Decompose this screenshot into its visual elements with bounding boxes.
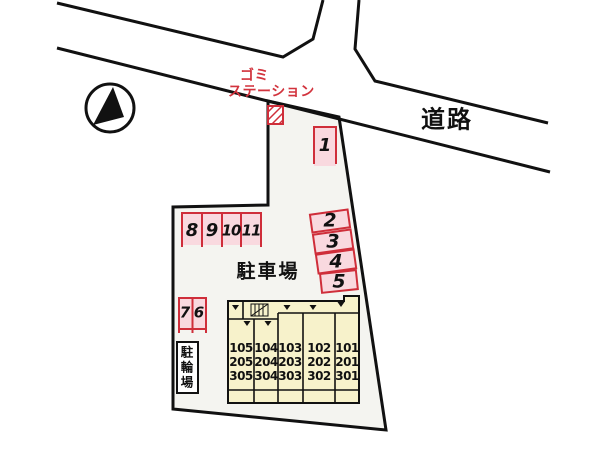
garbage-station-label-line1: ゴミ	[240, 69, 269, 85]
road-upper-edge	[57, 0, 323, 57]
stall-number-6: 6	[194, 305, 204, 322]
stall-number-11: 11	[242, 223, 261, 240]
bicycle-parking-label: 駐 輪 場	[181, 345, 194, 390]
stall-number-7: 7	[180, 305, 190, 322]
building-unit-numbers-104: 104 204 304	[254, 342, 278, 383]
stall-number-1: 1	[319, 136, 332, 156]
branch-road-right-edge	[355, 0, 548, 123]
building-unit-numbers-103: 103 203 303	[278, 342, 302, 383]
parking-lot-label: 駐車場	[236, 261, 299, 282]
building-unit-numbers-105: 105 205 305	[229, 342, 253, 383]
stall-number-10: 10	[222, 223, 241, 240]
building-unit-numbers-102: 102 202 302	[307, 342, 331, 383]
stall-number-5: 5	[332, 271, 345, 292]
stall-number-2: 2	[323, 210, 336, 231]
garbage-station-label-line2: ステーション	[228, 85, 315, 101]
garbage-station-box	[268, 106, 283, 124]
stall-number-9: 9	[206, 221, 219, 241]
building-unit-numbers-101: 101 201 301	[335, 342, 359, 383]
site-plan: 道路 ゴミ ステーション 駐車場 駐 輪 場 1 2 3 4 5 6 7 8 9…	[0, 0, 600, 450]
north-arrow-icon	[86, 84, 134, 132]
stall-number-8: 8	[186, 221, 199, 241]
road-label: 道路	[421, 107, 473, 134]
